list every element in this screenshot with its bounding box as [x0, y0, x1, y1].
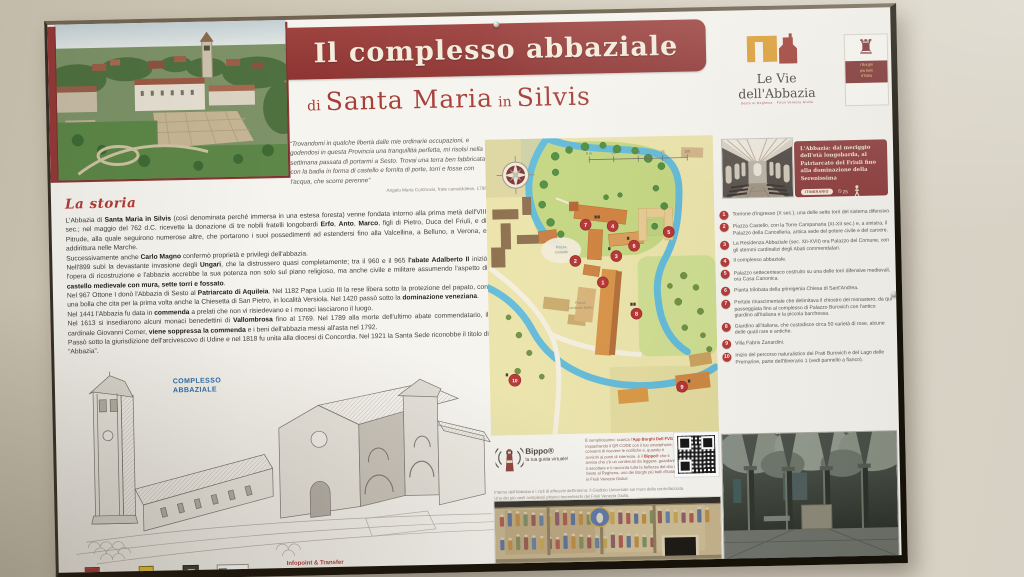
- map-marker: 5: [663, 226, 674, 237]
- map-marker: 2: [570, 255, 581, 266]
- list-item: 6Pianta trilobata della primigenia Chies…: [721, 283, 893, 296]
- map-marker: 3: [611, 250, 622, 261]
- le-vie-dell-abbazia-logo: Le Vie dell'Abbazia Sesto al Reghena · F…: [716, 31, 838, 109]
- item-number-badge: 4: [720, 257, 729, 266]
- abbey-illustration: [63, 364, 497, 569]
- svg-text:75: 75: [661, 150, 665, 154]
- vie-logo-title: Le Vie dell'Abbazia: [716, 69, 837, 102]
- qr-code: [677, 435, 716, 474]
- illustration-label: COMPLESSO ABBAZIALE: [173, 377, 235, 396]
- bippo-lighthouse-icon: [495, 441, 524, 476]
- list-item: 3La Residenza Abbaziale (sec. XII-XVII) …: [720, 237, 892, 254]
- screw-fastener: [891, 291, 897, 297]
- aerial-photo-graphic: [55, 18, 288, 181]
- label-piazza-castello: Piazza: [556, 245, 567, 249]
- svg-text:5: 5: [667, 230, 670, 236]
- list-item: 9Villa Fabris Zanardini.: [722, 337, 894, 350]
- abbey-routes-icon: [745, 32, 808, 65]
- svg-text:1: 1: [601, 280, 604, 286]
- svg-text:Cardinale Barbo: Cardinale Barbo: [568, 306, 593, 311]
- list-item: 5Palazzo settecentesco costruito su una …: [721, 266, 893, 283]
- map-marker: 6: [628, 240, 639, 251]
- title-banner: Il complesso abbaziale: [285, 19, 706, 80]
- list-item: 4Il complesso abbaziale.: [720, 254, 892, 267]
- itinerary-summary-text: L'Abbazia: dal meriggio dell'età longoba…: [800, 144, 882, 183]
- item-number-badge: 7: [721, 299, 730, 308]
- info-panel: Il complesso abbaziale di Santa Maria in…: [44, 3, 908, 577]
- infopoint-web: www.abbaziasesto.it - infopoint.sesto@gm…: [287, 571, 499, 577]
- bippo-name: Bippo®: [525, 446, 554, 456]
- coat-of-arms-3: [183, 565, 199, 577]
- map-marker: 4: [607, 221, 618, 232]
- fresco-photo: [494, 497, 721, 570]
- svg-text:9: 9: [680, 385, 683, 391]
- subtitle-di: di: [307, 98, 321, 114]
- story-text-block: L'Abbazia di Santa Maria in Silvis (così…: [65, 208, 489, 357]
- section-heading-la-storia: La storia: [65, 195, 137, 212]
- item-number-badge: 3: [720, 240, 729, 249]
- borghi-logo-text: I Borghi più belli d'Italia: [845, 60, 887, 83]
- map-marker: 8: [631, 308, 642, 319]
- screw-fastener: [493, 21, 499, 27]
- bippo-section: Bippo® la tua guida virtuale! È semplici…: [493, 433, 720, 490]
- map-marker: 9: [676, 381, 687, 392]
- svg-text:7: 7: [584, 223, 587, 229]
- bippo-description: È semplicissimo: scarica l'App Borghi De…: [585, 436, 678, 482]
- svg-text:2: 2: [574, 259, 577, 265]
- list-item: 7Portale rinascimentale che delimitava i…: [721, 296, 893, 320]
- svg-text:100: 100: [684, 149, 690, 153]
- item-number-badge: 5: [721, 270, 730, 279]
- subtitle-end: Silvis: [516, 82, 591, 113]
- page-title: Il complesso abbaziale: [313, 30, 678, 69]
- list-item: 8Giardino all'italiana, che custodisce c…: [722, 319, 894, 336]
- page-subtitle: di Santa Maria in Silvis: [239, 80, 660, 118]
- itinerary-badge: ITINERARIO: [801, 189, 833, 196]
- itinerary-list: 1Torrione d'ingresso (X sec.), una delle…: [719, 207, 894, 369]
- coat-of-arms-2: [139, 566, 154, 577]
- duration-indicator: ◷25: [838, 188, 848, 194]
- svg-text:0 m: 0 m: [586, 152, 592, 156]
- item-number-badge: 1: [719, 211, 728, 220]
- item-number-badge: 10: [722, 352, 731, 361]
- bippo-tagline: la tua guida virtuale!: [525, 457, 568, 463]
- map-marker: 10: [509, 374, 521, 386]
- list-item: 10Inizio del percorso naturalistico dei …: [722, 349, 894, 366]
- svg-text:8: 8: [635, 312, 638, 318]
- historic-quote: “Trovandomi in qualche libertà dalle mie…: [290, 136, 487, 197]
- item-number-badge: 9: [722, 340, 731, 349]
- aerial-photo: [55, 18, 288, 181]
- svg-text:50: 50: [636, 151, 640, 155]
- svg-text:25: 25: [612, 151, 616, 155]
- quote-attribution: Angelo Maria Cortinovis, frate camaldole…: [291, 186, 487, 197]
- borghi-piu-belli-logo: ♜ I Borghi più belli d'Italia: [844, 33, 889, 106]
- coat-of-arms-1: [85, 567, 100, 577]
- subtitle-main: Santa Maria: [325, 84, 493, 116]
- crypt-photo: [722, 431, 899, 560]
- svg-text:6: 6: [632, 244, 635, 250]
- subtitle-in: in: [498, 94, 512, 110]
- svg-text:Castello: Castello: [555, 250, 568, 254]
- list-item: 2Piazza Castello, con la Torre Campanari…: [720, 220, 892, 237]
- infopoint-block: Infopoint & Transfer Piazza Castello 5 -…: [287, 556, 499, 577]
- itinerary-summary-box: L'Abbazia: dal meriggio dell'età longoba…: [794, 139, 888, 197]
- village-map: Piazza Castello Piazza Cardinale Barbo: [485, 135, 719, 436]
- map-marker: 1: [597, 277, 608, 288]
- partner-logo: [217, 564, 249, 577]
- item-number-badge: 6: [721, 287, 730, 296]
- map-marker: 7: [580, 219, 591, 230]
- quote-text: “Trovandomi in qualche libertà dalle mie…: [290, 136, 487, 187]
- item-number-badge: 8: [722, 323, 731, 332]
- svg-text:10: 10: [512, 378, 518, 384]
- list-item: 1Torrione d'ingresso (X sec.), una delle…: [719, 207, 891, 220]
- clock-icon: ◷: [838, 188, 842, 194]
- panel-surface: Il complesso abbaziale di Santa Maria in…: [44, 3, 908, 577]
- label-piazza-barbo: Piazza: [575, 301, 585, 305]
- svg-text:3: 3: [615, 254, 618, 260]
- castle-icon: ♜: [845, 34, 888, 61]
- item-number-badge: 2: [720, 223, 729, 232]
- wall-photo-scene: Il complesso abbaziale di Santa Maria in…: [0, 0, 1024, 577]
- walking-person-icon: [853, 185, 861, 197]
- church-interior-photo: [722, 138, 793, 197]
